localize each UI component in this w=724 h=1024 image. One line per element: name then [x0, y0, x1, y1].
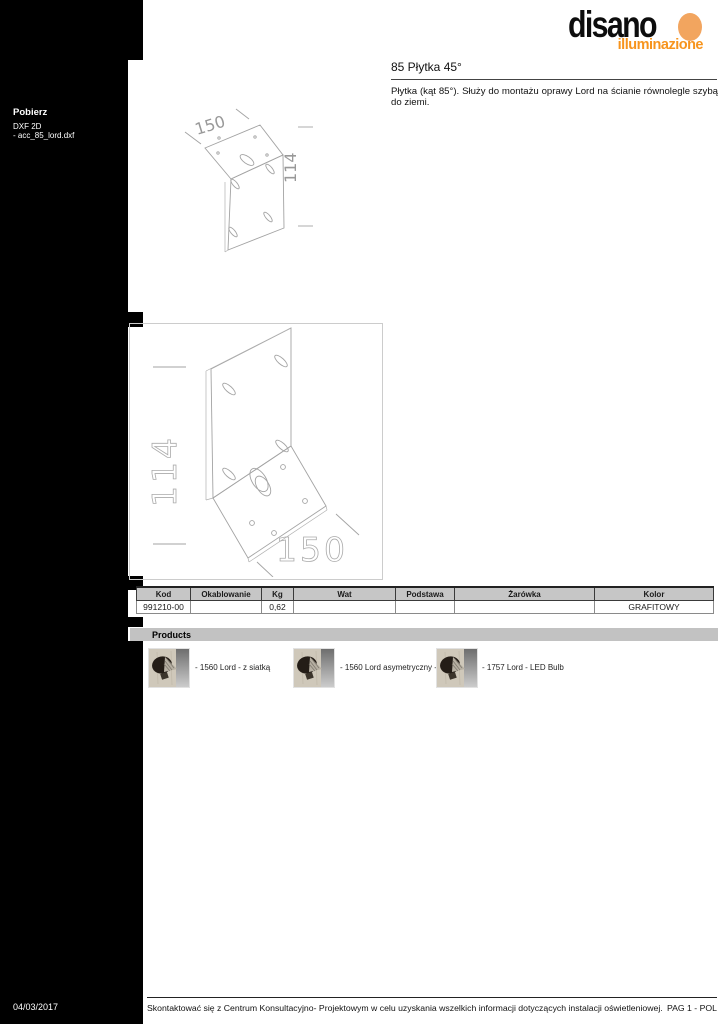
footer: Skontaktować się z Centrum Konsultacyjno…: [147, 1003, 717, 1013]
product-link-1560-lord-siatka[interactable]: - 1560 Lord - z siatką: [195, 663, 270, 672]
product-description: Płytka (kąt 85°). Służy do montażu opraw…: [391, 86, 718, 108]
dim-height-large: 114: [145, 435, 184, 507]
footer-rule: [147, 997, 717, 998]
spec-table: Kod Okablowanie Kg Wat Podstawa Żarówka …: [136, 586, 714, 614]
cell-wat: [294, 601, 396, 614]
cell-okablowanie: [191, 601, 262, 614]
technical-drawing-small: 150 114: [150, 98, 335, 268]
col-header-zarowka: Żarówka: [455, 587, 595, 601]
dim-height-small: 114: [281, 152, 300, 183]
dim-width-large: 150: [276, 530, 348, 569]
cell-kod: 991210-00: [137, 601, 191, 614]
dim-width-small: 150: [193, 112, 228, 139]
cell-zarowka: [455, 601, 595, 614]
cell-kg: 0,62: [262, 601, 294, 614]
sidebar-black-bottom: [0, 641, 143, 1024]
col-header-kolor: Kolor: [595, 587, 714, 601]
product-link-1560-lord-asym[interactable]: - 1560 Lord asymetryczny - z: [340, 663, 443, 672]
product-photo-1757-lord-led[interactable]: [436, 648, 478, 688]
col-header-kg: Kg: [262, 587, 294, 601]
technical-drawing-large-frame: 114 150: [129, 323, 383, 580]
download-format-label: DXF 2D: [13, 122, 41, 131]
product-photo-1560-lord-siatka[interactable]: [148, 648, 190, 688]
products-section-header: Products: [130, 628, 718, 641]
cell-kolor: GRAFITOWY: [595, 601, 714, 614]
footer-note: Skontaktować się z Centrum Konsultacyjno…: [147, 1003, 663, 1013]
page-title: 85 Płytka 45°: [391, 60, 717, 80]
cell-podstawa: [396, 601, 455, 614]
download-dxf-link[interactable]: - acc_85_lord.dxf: [13, 131, 74, 140]
sidebar-tab-top: [0, 0, 143, 60]
spec-table-data-row: 991210-00 0,62 GRAFITOWY: [137, 601, 714, 614]
product-photo-1560-lord-asym[interactable]: [293, 648, 335, 688]
sidebar-tab-drawing: [0, 312, 143, 327]
datasheet-page: Pobierz DXF 2D - acc_85_lord.dxf 04/03/2…: [0, 0, 724, 1024]
footer-page-ref: PAG 1 - POL: [667, 1003, 717, 1013]
download-heading: Pobierz: [13, 107, 47, 118]
col-header-kod: Kod: [137, 587, 191, 601]
technical-drawing-large: 114 150: [130, 324, 380, 577]
sidebar-tab-table: [0, 576, 143, 590]
date-label: 04/03/2017: [13, 1002, 58, 1012]
col-header-podstawa: Podstawa: [396, 587, 455, 601]
sidebar-tab-products: [0, 617, 143, 627]
col-header-wat: Wat: [294, 587, 396, 601]
disano-logo-subtitle: illuminazione: [565, 38, 703, 53]
product-link-1757-lord-led[interactable]: - 1757 Lord - LED Bulb: [482, 663, 564, 672]
products-heading: Products: [152, 630, 191, 640]
spec-table-header-row: Kod Okablowanie Kg Wat Podstawa Żarówka …: [137, 587, 714, 601]
col-header-okablowanie: Okablowanie: [191, 587, 262, 601]
